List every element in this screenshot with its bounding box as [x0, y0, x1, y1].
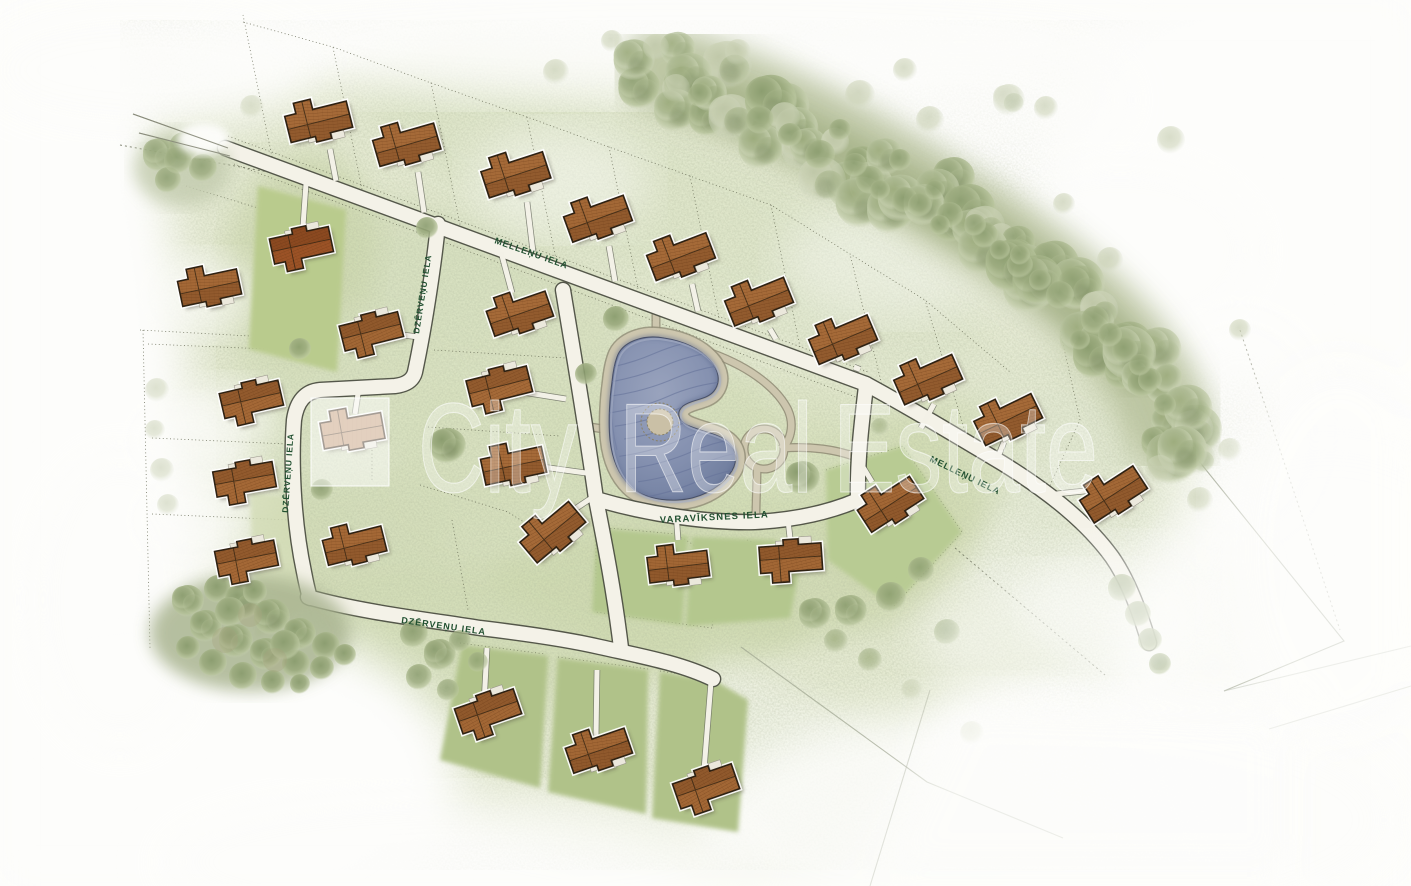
- svg-text:City: City: [418, 377, 577, 519]
- svg-text:Estate: Estate: [833, 377, 1098, 519]
- svg-text:Real: Real: [619, 377, 813, 519]
